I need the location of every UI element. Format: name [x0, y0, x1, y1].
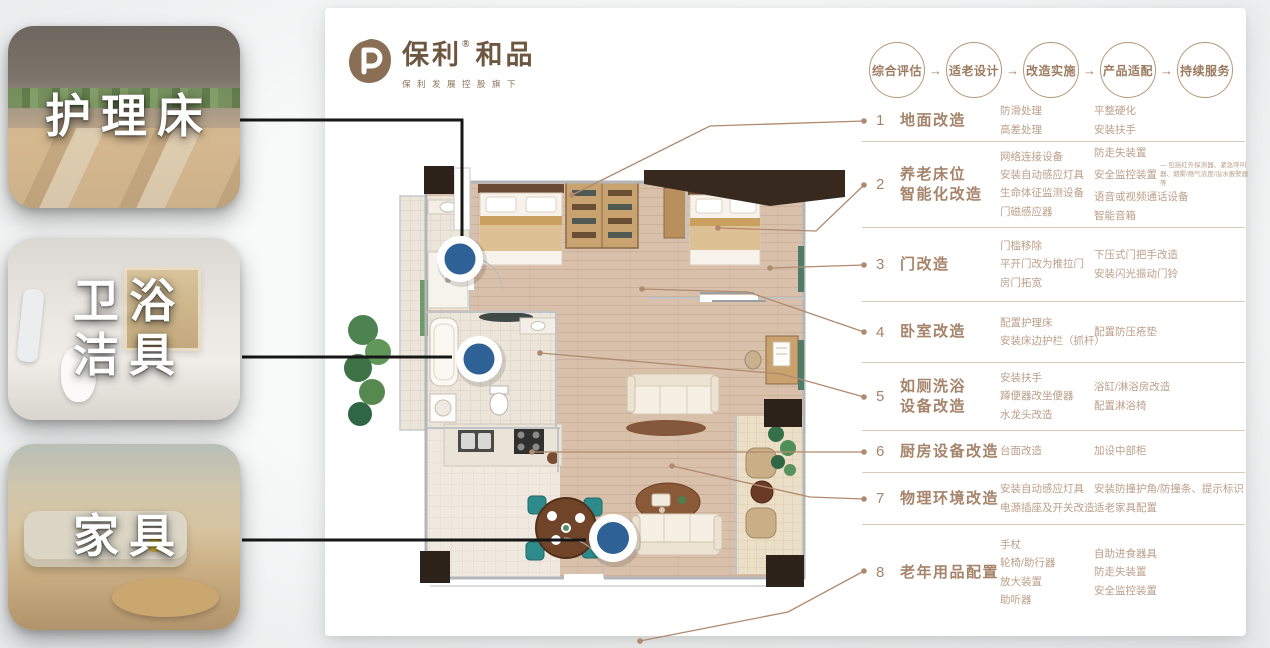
- detail-column: 自助进食器具防走失装置安全监控装置: [1094, 545, 1245, 600]
- detail-item: 蹲便器改坐便器: [1000, 387, 1094, 405]
- detail-item: 安装扶手: [1094, 121, 1245, 139]
- detail-text: 下压式门把手改造: [1094, 249, 1178, 261]
- detail-item: 网络连接设备: [1000, 148, 1094, 166]
- category-title: 地面改造: [900, 111, 1000, 131]
- flow-arrow-icon: →: [1159, 63, 1174, 78]
- detail-text: 蹲便器改坐便器: [1000, 390, 1074, 402]
- detail-column: 配置护理床安装床边护栏（抓杆）: [1000, 314, 1094, 351]
- detail-item: 安装防撞护角/防撞条、提示标识: [1094, 480, 1245, 498]
- card-label: 卫浴 洁具: [8, 238, 240, 420]
- detail-text: 浴缸/淋浴房改造: [1094, 381, 1170, 393]
- process-step-2: 适老设计: [946, 42, 1002, 98]
- detail-item: 台面改造: [1000, 442, 1094, 460]
- category-details: 配置护理床安装床边护栏（抓杆）配置防压疮垫: [1000, 314, 1245, 351]
- detail-text: 高差处理: [1000, 124, 1042, 136]
- detail-item: 门磁感应器: [1000, 203, 1094, 221]
- detail-item: 手杖: [1000, 536, 1094, 554]
- detail-text: 安装防撞护角/防撞条、提示标识: [1094, 483, 1244, 495]
- detail-item: 轮椅/助行器: [1000, 554, 1094, 572]
- category-row-7: 7物理环境改造安装自动感应灯具电源插座及开关改造安装防撞护角/防撞条、提示标识适…: [862, 473, 1245, 525]
- detail-text: 网络连接设备: [1000, 151, 1063, 163]
- process-step-4: 产品适配: [1100, 42, 1156, 98]
- detail-column: 安装防撞护角/防撞条、提示标识适老家具配置: [1094, 480, 1245, 517]
- detail-text: 安全监控装置: [1094, 585, 1157, 597]
- detail-item: 房门拓宽: [1000, 274, 1094, 292]
- detail-text: 安全监控装置: [1094, 169, 1157, 181]
- brand-tagline: 保利发展控股旗下: [402, 78, 535, 90]
- category-title: 卧室改造: [900, 322, 1000, 342]
- detail-item: 安装自动感应灯具: [1000, 166, 1094, 184]
- card-label: 护理床: [8, 26, 240, 208]
- category-title: 如厕洗浴 设备改造: [900, 377, 1000, 416]
- brand-logo: 保利 ® 和品 保利发展控股旗下: [348, 38, 535, 90]
- detail-item: 门槛移除: [1000, 237, 1094, 255]
- detail-text: 自助进食器具: [1094, 548, 1157, 560]
- detail-column: 配置防压疮垫: [1094, 323, 1245, 341]
- detail-text: 轮椅/助行器: [1000, 557, 1055, 569]
- detail-text: 门槛移除: [1000, 240, 1042, 252]
- category-row-3: 3门改造门槛移除平开门改为推拉门房门拓宽下压式门把手改造安装闪光振动门铃: [862, 228, 1245, 302]
- detail-text: 台面改造: [1000, 445, 1042, 457]
- category-number: 7: [876, 490, 900, 507]
- detail-item: 自助进食器具: [1094, 545, 1245, 563]
- detail-text: 配置防压疮垫: [1094, 326, 1157, 338]
- detail-text: 手杖: [1000, 539, 1021, 551]
- card-label: 家具: [8, 444, 240, 630]
- detail-column: 加设中部柜: [1094, 442, 1245, 460]
- detail-column: 台面改造: [1000, 442, 1094, 460]
- detail-item: 智能音箱: [1094, 207, 1250, 225]
- category-row-4: 4卧室改造配置护理床安装床边护栏（抓杆）配置防压疮垫: [862, 302, 1245, 363]
- detail-item: 安装自动感应灯具: [1000, 480, 1094, 498]
- category-details: 台面改造加设中部柜: [1000, 442, 1245, 460]
- category-row-2: 2养老床位 智能化改造网络连接设备安装自动感应灯具生命体征监测设备门磁感应器防走…: [862, 142, 1245, 228]
- detail-item: 安全监控装置: [1094, 582, 1245, 600]
- category-title: 物理环境改造: [900, 489, 1000, 509]
- detail-text: 防走失装置: [1094, 566, 1147, 578]
- detail-item: 配置防压疮垫: [1094, 323, 1245, 341]
- poly-logo-icon: [348, 38, 392, 84]
- detail-item: 防走失装置: [1094, 144, 1250, 162]
- photo-card-bath-fixtures: 卫浴 洁具: [8, 238, 240, 420]
- detail-text: 智能音箱: [1094, 210, 1136, 222]
- category-number: 2: [876, 176, 900, 193]
- detail-text: 加设中部柜: [1094, 445, 1147, 457]
- detail-text: 水龙头改造: [1000, 409, 1053, 421]
- detail-item: 浴缸/淋浴房改造: [1094, 378, 1245, 396]
- process-flow: 综合评估→适老设计→改造实施→产品适配→持续服务: [869, 42, 1233, 98]
- process-step-3: 改造实施: [1023, 42, 1079, 98]
- category-number: 5: [876, 388, 900, 405]
- category-number: 3: [876, 256, 900, 273]
- detail-item: 助听器: [1000, 591, 1094, 609]
- category-details: 门槛移除平开门改为推拉门房门拓宽下压式门把手改造安装闪光振动门铃: [1000, 237, 1245, 292]
- detail-item: 高差处理: [1000, 121, 1094, 139]
- detail-item: 安装床边护栏（抓杆）: [1000, 332, 1094, 350]
- detail-column: 防走失装置安全监控装置— 包括红外探测器、紧急呼叫器、烟雾/燃气浓度/溢水报警器…: [1094, 144, 1250, 225]
- category-title: 养老床位 智能化改造: [900, 165, 1000, 204]
- detail-text: 安装自动感应灯具: [1000, 483, 1084, 495]
- registered-mark: ®: [462, 38, 469, 50]
- flow-arrow-icon: →: [1005, 63, 1020, 78]
- detail-item: 安装扶手: [1000, 369, 1094, 387]
- detail-item: 平整硬化: [1094, 102, 1245, 120]
- detail-item: 配置淋浴椅: [1094, 397, 1245, 415]
- detail-item: 生命体征监测设备: [1000, 184, 1094, 202]
- detail-text: 适老家具配置: [1094, 502, 1157, 514]
- detail-column: 防滑处理高差处理: [1000, 102, 1094, 139]
- brand-series: 和品: [475, 38, 535, 73]
- detail-text: 平整硬化: [1094, 105, 1136, 117]
- category-details: 安装扶手蹲便器改坐便器水龙头改造浴缸/淋浴房改造配置淋浴椅: [1000, 369, 1245, 424]
- detail-text: 配置淋浴椅: [1094, 400, 1147, 412]
- detail-text: 防走失装置: [1094, 147, 1147, 159]
- category-row-6: 6厨房设备改造台面改造加设中部柜: [862, 431, 1245, 473]
- photo-card-furniture: 家具: [8, 444, 240, 630]
- category-list: 1地面改造防滑处理高差处理平整硬化安装扶手2养老床位 智能化改造网络连接设备安装…: [862, 100, 1245, 620]
- detail-item: 安全监控装置— 包括红外探测器、紧急呼叫器、烟雾/燃气浓度/溢水报警器等: [1094, 162, 1250, 188]
- detail-text: 安装床边护栏（抓杆）: [1000, 335, 1105, 347]
- detail-column: 手杖轮椅/助行器放大装置助听器: [1000, 536, 1094, 610]
- detail-item: 水龙头改造: [1000, 406, 1094, 424]
- detail-column: 安装扶手蹲便器改坐便器水龙头改造: [1000, 369, 1094, 424]
- category-details: 手杖轮椅/助行器放大装置助听器自助进食器具防走失装置安全监控装置: [1000, 536, 1245, 610]
- detail-column: 网络连接设备安装自动感应灯具生命体征监测设备门磁感应器: [1000, 148, 1094, 222]
- category-title: 门改造: [900, 255, 1000, 275]
- detail-text: 门磁感应器: [1000, 206, 1053, 218]
- detail-text: 电源插座及开关改造: [1000, 502, 1095, 514]
- category-number: 6: [876, 443, 900, 460]
- category-details: 安装自动感应灯具电源插座及开关改造安装防撞护角/防撞条、提示标识适老家具配置: [1000, 480, 1245, 517]
- detail-item: 加设中部柜: [1094, 442, 1245, 460]
- detail-column: 下压式门把手改造安装闪光振动门铃: [1094, 246, 1245, 283]
- detail-item: 平开门改为推拉门: [1000, 255, 1094, 273]
- detail-text: 安装扶手: [1000, 372, 1042, 384]
- category-row-1: 1地面改造防滑处理高差处理平整硬化安装扶手: [862, 100, 1245, 142]
- detail-text: 放大装置: [1000, 576, 1042, 588]
- flow-arrow-icon: →: [1082, 63, 1097, 78]
- detail-note: — 包括红外探测器、紧急呼叫器、烟雾/燃气浓度/溢水报警器等: [1160, 162, 1250, 188]
- detail-column: 安装自动感应灯具电源插座及开关改造: [1000, 480, 1094, 517]
- category-title: 厨房设备改造: [900, 442, 1000, 462]
- category-row-5: 5如厕洗浴 设备改造安装扶手蹲便器改坐便器水龙头改造浴缸/淋浴房改造配置淋浴椅: [862, 363, 1245, 431]
- detail-text: 平开门改为推拉门: [1000, 258, 1084, 270]
- page: { "logo": { "name": "保利", "registered": …: [0, 0, 1270, 648]
- brand-name: 保利: [402, 38, 462, 73]
- detail-item: 电源插座及开关改造: [1000, 499, 1094, 517]
- detail-text: 助听器: [1000, 594, 1032, 606]
- category-number: 8: [876, 564, 900, 581]
- category-details: 网络连接设备安装自动感应灯具生命体征监测设备门磁感应器防走失装置安全监控装置— …: [1000, 144, 1250, 225]
- detail-item: 防滑处理: [1000, 102, 1094, 120]
- category-number: 4: [876, 324, 900, 341]
- detail-item: 语音或视频通话设备: [1094, 188, 1250, 206]
- category-number: 1: [876, 112, 900, 129]
- detail-text: 生命体征监测设备: [1000, 187, 1084, 199]
- detail-item: 下压式门把手改造: [1094, 246, 1245, 264]
- detail-column: 平整硬化安装扶手: [1094, 102, 1245, 139]
- process-step-5: 持续服务: [1177, 42, 1233, 98]
- detail-text: 语音或视频通话设备: [1094, 191, 1189, 203]
- category-details: 防滑处理高差处理平整硬化安装扶手: [1000, 102, 1245, 139]
- detail-text: 安装扶手: [1094, 124, 1136, 136]
- detail-item: 配置护理床: [1000, 314, 1094, 332]
- category-row-8: 8老年用品配置手杖轮椅/助行器放大装置助听器自助进食器具防走失装置安全监控装置: [862, 525, 1245, 620]
- detail-column: 门槛移除平开门改为推拉门房门拓宽: [1000, 237, 1094, 292]
- detail-item: 放大装置: [1000, 573, 1094, 591]
- flow-arrow-icon: →: [928, 63, 943, 78]
- category-title: 老年用品配置: [900, 563, 1000, 583]
- detail-text: 安装自动感应灯具: [1000, 169, 1084, 181]
- photo-card-nursing-bed: 护理床: [8, 26, 240, 208]
- detail-text: 配置护理床: [1000, 317, 1053, 329]
- detail-item: 安装闪光振动门铃: [1094, 265, 1245, 283]
- detail-column: 浴缸/淋浴房改造配置淋浴椅: [1094, 378, 1245, 415]
- detail-item: 防走失装置: [1094, 563, 1245, 581]
- detail-item: 适老家具配置: [1094, 499, 1245, 517]
- detail-text: 安装闪光振动门铃: [1094, 268, 1178, 280]
- detail-text: 房门拓宽: [1000, 277, 1042, 289]
- process-step-1: 综合评估: [869, 42, 925, 98]
- detail-text: 防滑处理: [1000, 105, 1042, 117]
